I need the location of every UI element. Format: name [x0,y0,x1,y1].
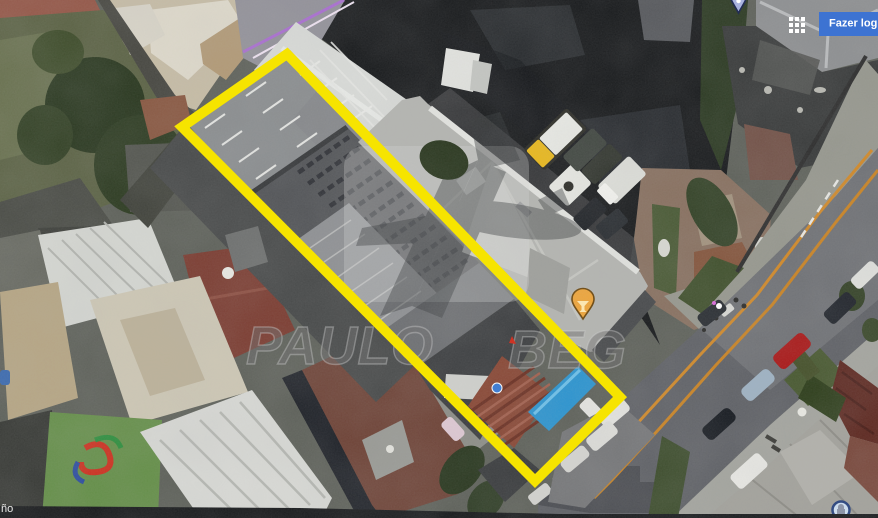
svg-text:Fazer login: Fazer login [829,18,878,30]
